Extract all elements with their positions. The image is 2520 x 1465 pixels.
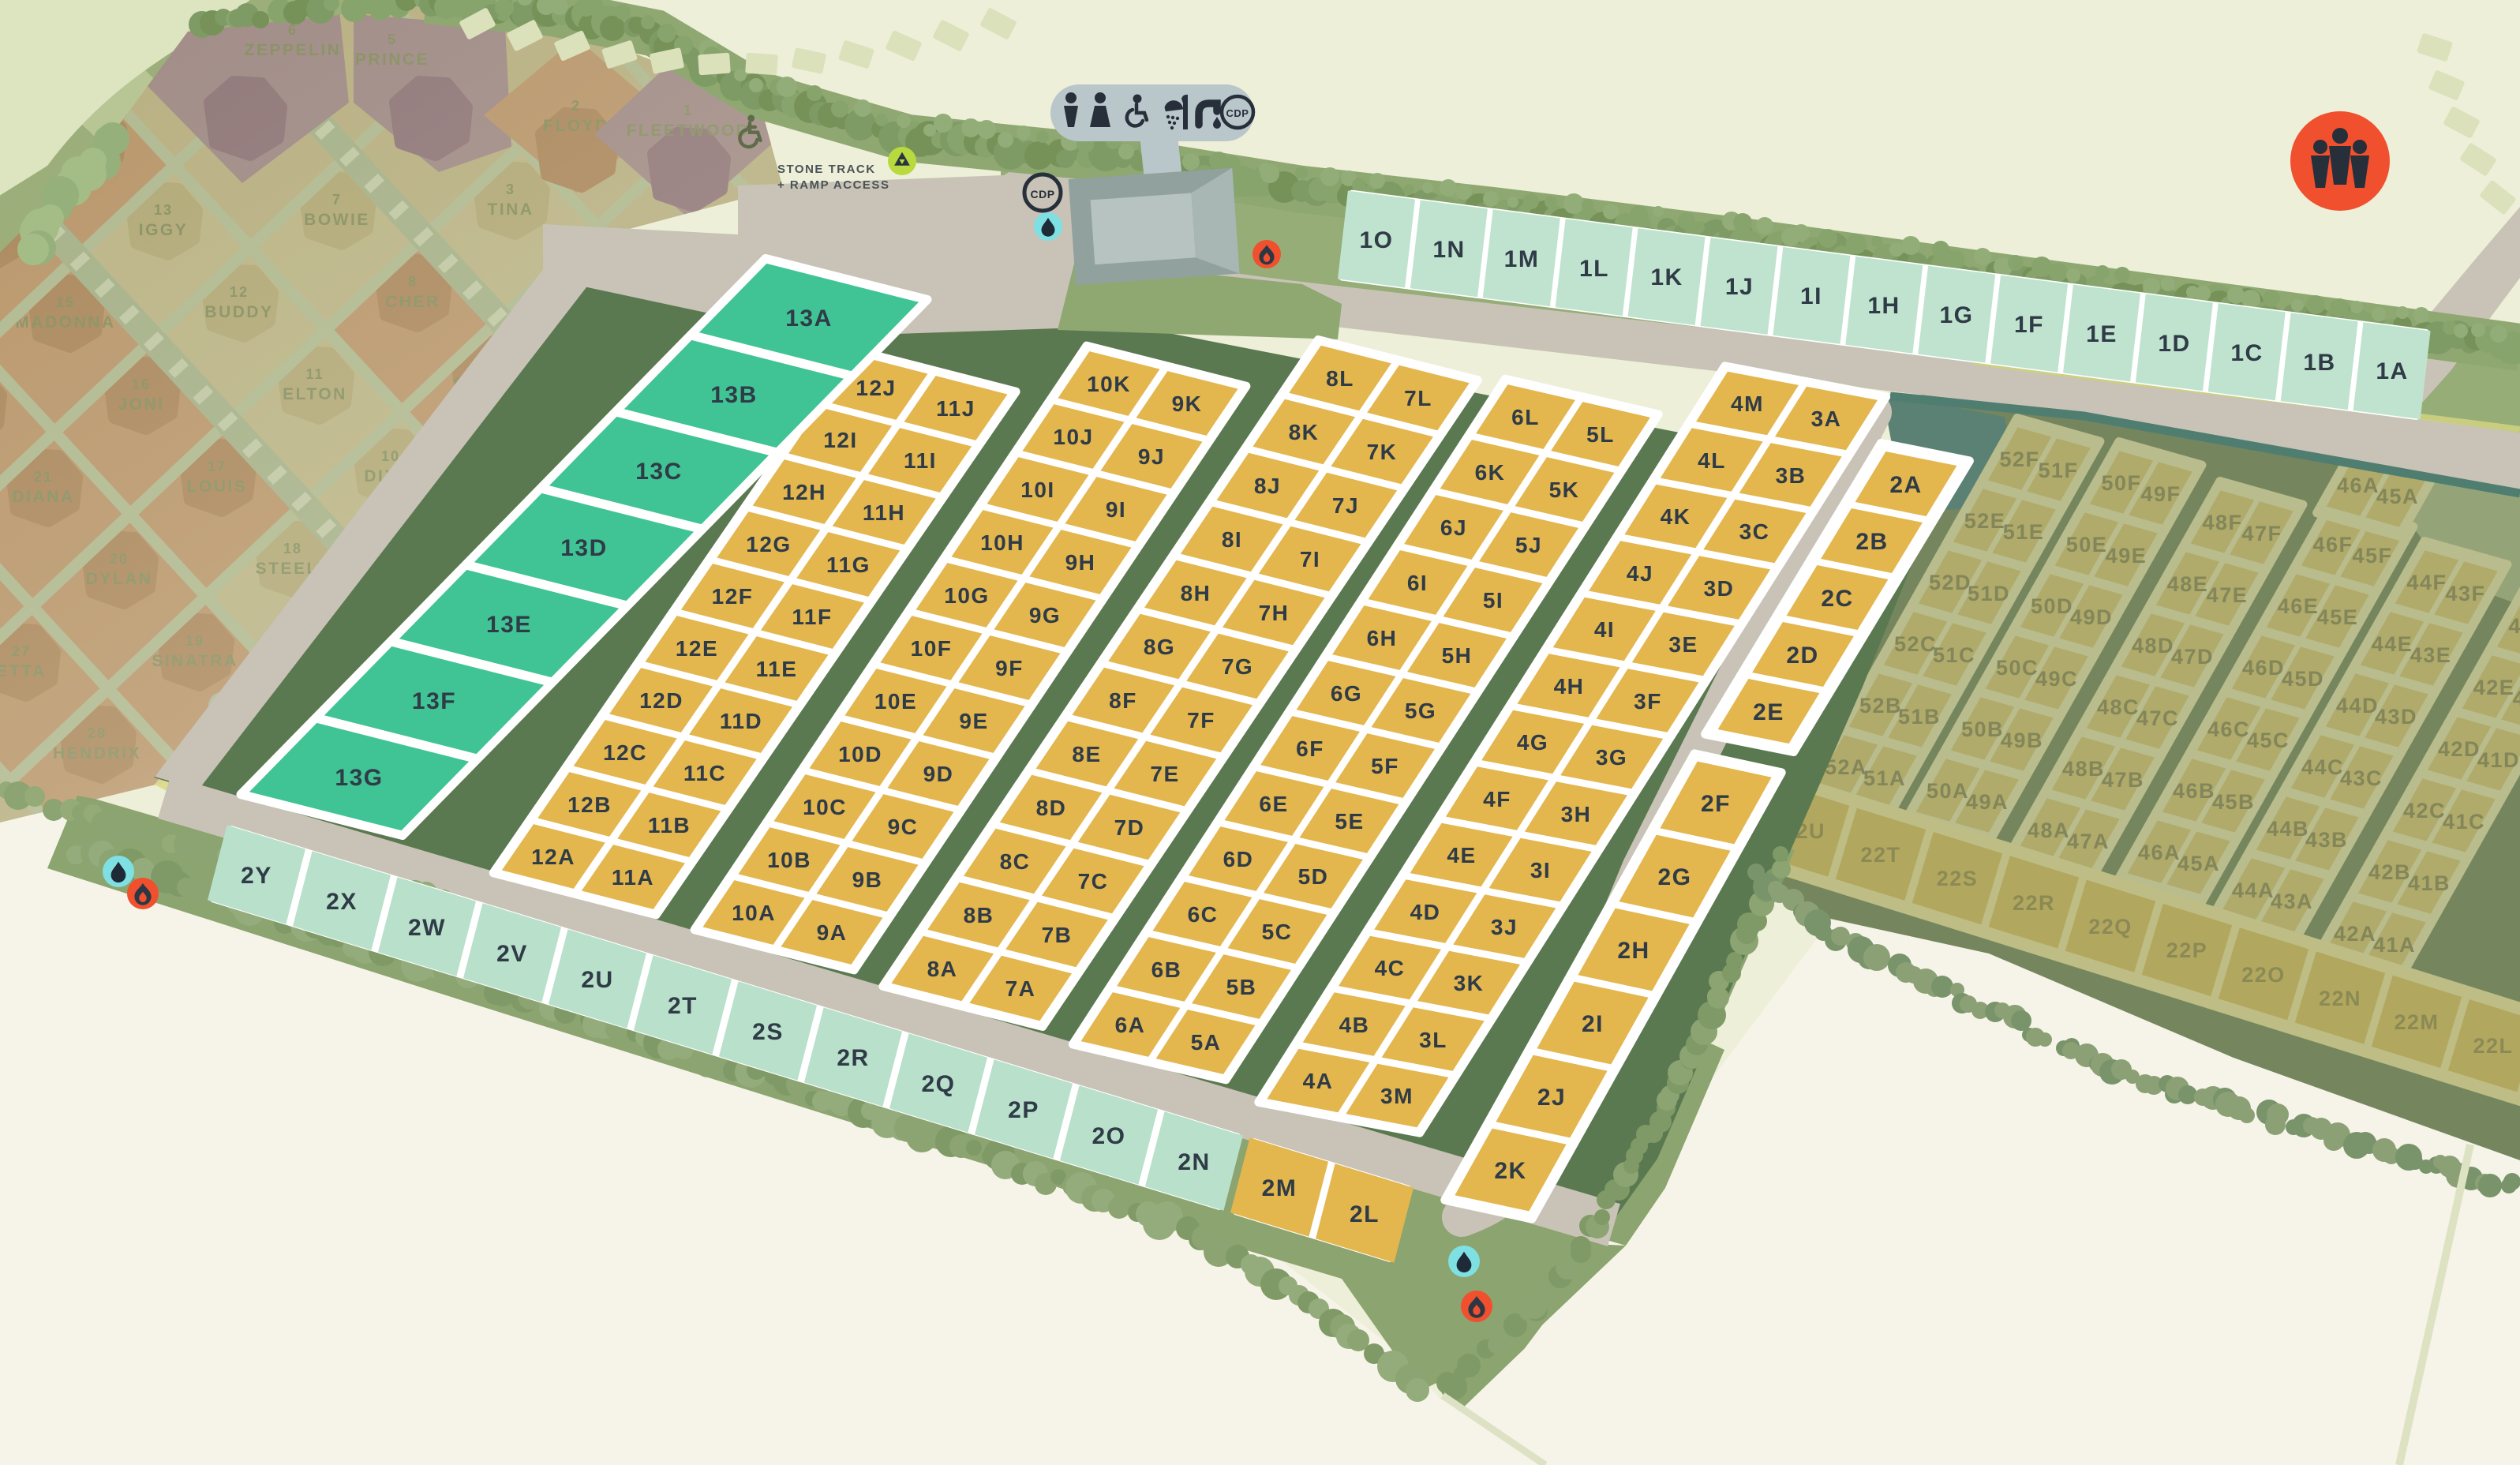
svg-text:1F: 1F [2014, 312, 2044, 338]
svg-text:51E: 51E [2003, 520, 2045, 544]
svg-text:47E: 47E [2207, 583, 2249, 607]
svg-text:46E: 46E [2278, 594, 2320, 618]
svg-text:50B: 50B [1961, 718, 2004, 741]
svg-text:3D: 3D [1704, 576, 1735, 601]
svg-text:10D: 10D [838, 742, 882, 766]
svg-text:9K: 9K [1172, 392, 1203, 416]
svg-text:1I: 1I [1800, 283, 1822, 309]
svg-text:46F: 46F [2312, 533, 2353, 556]
svg-text:5I: 5I [1483, 588, 1503, 613]
svg-text:22Q: 22Q [2088, 915, 2132, 939]
svg-text:6K: 6K [1475, 460, 1506, 485]
svg-text:4F: 4F [1483, 787, 1511, 811]
svg-text:5K: 5K [1549, 478, 1580, 502]
svg-text:1A: 1A [2376, 358, 2408, 384]
svg-text:1L: 1L [1579, 256, 1609, 282]
svg-text:11B: 11B [648, 813, 691, 837]
svg-text:48C: 48C [2097, 695, 2140, 719]
svg-text:8K: 8K [1289, 420, 1320, 444]
svg-text:9G: 9G [1029, 603, 1061, 628]
svg-text:2Q: 2Q [921, 1071, 955, 1097]
svg-text:13C: 13C [635, 459, 683, 485]
svg-text:12H: 12H [782, 480, 826, 504]
svg-text:5G: 5G [1405, 699, 1436, 723]
svg-text:3J: 3J [1491, 915, 1518, 939]
svg-text:3G: 3G [1596, 745, 1627, 770]
svg-text:1B: 1B [2303, 350, 2335, 376]
svg-text:3M: 3M [1380, 1084, 1414, 1108]
svg-text:7E: 7E [1150, 762, 1179, 786]
svg-text:7B: 7B [1042, 923, 1073, 947]
svg-text:4C: 4C [1375, 956, 1406, 980]
svg-text:43A: 43A [2271, 890, 2313, 913]
svg-text:6A: 6A [1115, 1013, 1146, 1037]
svg-text:11C: 11C [683, 761, 726, 785]
svg-text:50E: 50E [2066, 533, 2108, 556]
svg-text:8H: 8H [1181, 581, 1211, 605]
svg-text:9C: 9C [888, 815, 919, 839]
svg-text:41A: 41A [2373, 933, 2416, 957]
svg-text:11H: 11H [863, 500, 905, 525]
svg-text:43E: 43E [2410, 643, 2452, 667]
svg-text:11D: 11D [720, 709, 762, 733]
svg-text:3I: 3I [1530, 858, 1551, 882]
svg-text:8D: 8D [1036, 796, 1067, 820]
svg-text:6B: 6B [1151, 957, 1182, 982]
svg-text:6D: 6D [1223, 847, 1254, 871]
svg-text:46B: 46B [2173, 779, 2215, 803]
svg-text:10I: 10I [1020, 478, 1054, 502]
svg-text:5B: 5B [1226, 975, 1257, 999]
svg-text:47D: 47D [2171, 645, 2214, 669]
svg-text:22M: 22M [2394, 1010, 2439, 1034]
svg-text:52B: 52B [1859, 694, 1902, 718]
svg-text:CDP: CDP [1226, 107, 1249, 119]
svg-text:11G: 11G [826, 553, 871, 577]
svg-text:3A: 3A [1811, 407, 1842, 431]
svg-text:50F: 50F [2101, 471, 2141, 495]
svg-text:22T: 22T [1860, 843, 1900, 867]
svg-text:2M: 2M [1262, 1175, 1297, 1201]
svg-text:6J: 6J [1440, 515, 1467, 540]
svg-text:2N: 2N [1178, 1149, 1210, 1175]
svg-text:12F: 12F [712, 584, 754, 609]
svg-text:49E: 49E [2106, 544, 2147, 568]
svg-text:1D: 1D [2158, 331, 2190, 357]
svg-text:8L: 8L [1326, 366, 1354, 391]
svg-text:4K: 4K [1661, 504, 1691, 529]
svg-text:1N: 1N [1432, 237, 1465, 263]
svg-text:2G: 2G [1657, 864, 1691, 890]
svg-text:13D: 13D [560, 535, 608, 561]
svg-text:6L: 6L [1511, 405, 1540, 429]
svg-text:12D: 12D [639, 688, 683, 713]
svg-text:52A: 52A [1825, 755, 1867, 779]
svg-text:22S: 22S [1937, 867, 1979, 890]
svg-text:42F: 42F [2508, 614, 2520, 638]
svg-text:45E: 45E [2317, 605, 2359, 629]
svg-text:4E: 4E [1447, 843, 1476, 867]
svg-text:4G: 4G [1517, 730, 1548, 755]
svg-text:46C: 46C [2207, 718, 2250, 741]
svg-text:48B: 48B [2062, 757, 2105, 781]
svg-text:52D: 52D [1929, 571, 1971, 594]
svg-text:52E: 52E [1964, 509, 2006, 533]
svg-text:12B: 12B [567, 792, 612, 817]
svg-text:43D: 43D [2375, 705, 2417, 729]
svg-text:13A: 13A [785, 305, 833, 332]
svg-text:4H: 4H [1554, 674, 1585, 699]
svg-text:42A: 42A [2334, 922, 2376, 946]
svg-text:5E: 5E [1335, 809, 1364, 834]
svg-text:7F: 7F [1187, 708, 1215, 732]
svg-text:49A: 49A [1966, 790, 2009, 814]
svg-text:7D: 7D [1114, 815, 1145, 840]
svg-text:2Y: 2Y [241, 863, 272, 889]
svg-text:43C: 43C [2340, 766, 2383, 790]
svg-text:44C: 44C [2301, 755, 2344, 779]
svg-text:2E: 2E [1753, 699, 1784, 725]
svg-text:10G: 10G [944, 583, 989, 608]
svg-text:4J: 4J [1627, 561, 1653, 586]
svg-text:1J: 1J [1725, 274, 1754, 300]
svg-text:5H: 5H [1442, 643, 1473, 668]
svg-text:11I: 11I [904, 448, 937, 473]
svg-text:2F: 2F [1701, 791, 1731, 817]
svg-text:1G: 1G [1939, 302, 1973, 328]
svg-text:45B: 45B [2212, 790, 2255, 814]
svg-text:8G: 8G [1144, 635, 1175, 659]
svg-text:51B: 51B [1898, 705, 1941, 729]
svg-text:46D: 46D [2242, 656, 2285, 680]
svg-text:10K: 10K [1087, 372, 1131, 396]
svg-text:7L: 7L [1404, 386, 1432, 410]
svg-text:51C: 51C [1933, 643, 1975, 667]
svg-text:CDP: CDP [1030, 188, 1054, 200]
svg-text:50C: 50C [1996, 656, 2039, 680]
svg-text:10A: 10A [732, 901, 776, 925]
svg-text:13F: 13F [412, 688, 456, 714]
svg-text:4I: 4I [1594, 617, 1615, 642]
svg-text:2D: 2D [1786, 643, 1818, 669]
svg-text:12G: 12G [746, 532, 791, 556]
svg-text:6H: 6H [1367, 626, 1398, 650]
svg-text:46A: 46A [2337, 474, 2380, 497]
svg-text:+ RAMP ACCESS: + RAMP ACCESS [777, 178, 889, 192]
svg-text:13G: 13G [335, 765, 383, 791]
svg-text:9I: 9I [1106, 497, 1126, 522]
svg-text:3B: 3B [1776, 463, 1807, 488]
svg-text:4B: 4B [1339, 1013, 1370, 1037]
svg-text:2A: 2A [1889, 472, 1922, 498]
svg-text:2P: 2P [1008, 1097, 1039, 1123]
svg-text:10F: 10F [911, 636, 953, 661]
svg-text:1E: 1E [2086, 321, 2117, 347]
svg-text:47B: 47B [2102, 768, 2144, 792]
svg-text:7J: 7J [1332, 493, 1359, 518]
svg-text:9A: 9A [817, 920, 848, 945]
svg-text:42B: 42B [2368, 860, 2411, 884]
svg-text:52F: 52F [1999, 448, 2039, 471]
svg-text:44B: 44B [2267, 817, 2309, 841]
svg-text:41C: 41C [2443, 810, 2485, 834]
svg-text:2O: 2O [1092, 1123, 1125, 1149]
svg-text:STONE TRACK: STONE TRACK [777, 163, 876, 176]
svg-text:42D: 42D [2438, 737, 2481, 761]
svg-text:4A: 4A [1303, 1069, 1334, 1093]
svg-text:44F: 44F [2406, 571, 2447, 594]
svg-text:22N: 22N [2319, 987, 2361, 1010]
svg-text:22P: 22P [2166, 939, 2208, 962]
svg-text:45C: 45C [2247, 729, 2290, 752]
svg-text:8B: 8B [964, 903, 994, 927]
svg-text:1K: 1K [1650, 264, 1683, 290]
svg-text:10J: 10J [1053, 425, 1093, 449]
svg-text:2U: 2U [581, 967, 613, 993]
svg-text:3H: 3H [1561, 802, 1592, 826]
svg-text:43F: 43F [2445, 582, 2485, 605]
svg-text:48E: 48E [2167, 572, 2209, 596]
svg-text:2X: 2X [326, 889, 358, 915]
svg-text:48D: 48D [2132, 634, 2174, 658]
svg-text:2W: 2W [408, 915, 446, 941]
svg-text:2B: 2B [1855, 529, 1888, 555]
svg-text:22O: 22O [2241, 963, 2286, 987]
svg-text:2J: 2J [1537, 1085, 1566, 1111]
svg-text:7G: 7G [1222, 654, 1253, 679]
svg-text:8J: 8J [1254, 474, 1281, 498]
svg-text:41B: 41B [2408, 871, 2451, 895]
svg-text:9F: 9F [995, 656, 1024, 680]
svg-text:50A: 50A [1927, 779, 1969, 803]
svg-text:51D: 51D [1968, 582, 2010, 605]
svg-text:3C: 3C [1739, 519, 1770, 544]
svg-text:10H: 10H [980, 530, 1024, 555]
svg-text:12A: 12A [531, 845, 575, 869]
svg-text:6G: 6G [1331, 681, 1362, 706]
svg-text:2T: 2T [668, 993, 698, 1019]
svg-text:2S: 2S [752, 1019, 784, 1045]
svg-text:1C: 1C [2230, 340, 2263, 366]
svg-text:8E: 8E [1072, 742, 1101, 766]
svg-text:11F: 11F [792, 605, 832, 629]
svg-text:49D: 49D [2070, 605, 2113, 629]
svg-text:7I: 7I [1300, 547, 1320, 571]
svg-text:5L: 5L [1586, 422, 1615, 447]
svg-text:44D: 44D [2336, 694, 2379, 718]
svg-text:47A: 47A [2067, 830, 2110, 853]
svg-text:13E: 13E [486, 612, 532, 638]
svg-text:12E: 12E [676, 636, 718, 661]
svg-text:12I: 12I [823, 428, 857, 452]
svg-text:2C: 2C [1821, 586, 1853, 612]
svg-text:1O: 1O [1359, 227, 1393, 253]
svg-text:5D: 5D [1298, 864, 1329, 889]
svg-text:44A: 44A [2232, 879, 2275, 902]
svg-text:2R: 2R [837, 1045, 869, 1071]
svg-text:47C: 47C [2136, 706, 2179, 730]
svg-text:43B: 43B [2305, 828, 2348, 852]
svg-text:44E: 44E [2372, 632, 2413, 656]
svg-text:7A: 7A [1005, 976, 1036, 1001]
svg-text:45A: 45A [2177, 852, 2220, 875]
svg-text:49C: 49C [2035, 667, 2078, 691]
svg-text:42C: 42C [2403, 799, 2446, 822]
svg-text:42E: 42E [2473, 676, 2515, 699]
svg-text:5F: 5F [1371, 754, 1399, 778]
svg-text:45D: 45D [2282, 667, 2324, 691]
svg-text:12J: 12J [856, 376, 896, 400]
svg-text:47F: 47F [2241, 522, 2282, 545]
svg-text:4M: 4M [1731, 392, 1764, 416]
svg-text:2K: 2K [1494, 1158, 1526, 1184]
svg-text:10C: 10C [803, 795, 847, 819]
svg-text:4D: 4D [1410, 900, 1441, 924]
svg-text:11E: 11E [756, 657, 798, 681]
svg-text:51F: 51F [2038, 459, 2078, 482]
svg-text:45F: 45F [2352, 544, 2392, 568]
svg-text:8I: 8I [1222, 527, 1242, 552]
svg-text:4L: 4L [1698, 448, 1726, 473]
svg-text:8A: 8A [927, 957, 958, 981]
svg-text:6I: 6I [1407, 571, 1428, 595]
svg-text:9H: 9H [1065, 550, 1096, 575]
svg-text:7C: 7C [1078, 869, 1109, 894]
svg-text:6C: 6C [1188, 902, 1219, 927]
svg-text:5A: 5A [1191, 1030, 1222, 1055]
svg-text:9B: 9B [852, 867, 883, 892]
svg-text:9D: 9D [923, 762, 954, 786]
svg-text:48A: 48A [2028, 819, 2070, 842]
svg-text:10B: 10B [767, 848, 811, 872]
svg-text:11A: 11A [612, 865, 654, 890]
svg-text:13B: 13B [710, 382, 758, 408]
svg-text:1M: 1M [1504, 246, 1540, 272]
svg-text:2L: 2L [1350, 1201, 1380, 1227]
svg-text:22L: 22L [2473, 1034, 2513, 1058]
svg-text:7K: 7K [1367, 440, 1398, 464]
svg-text:3K: 3K [1454, 971, 1485, 995]
svg-text:45A: 45A [2376, 485, 2419, 508]
svg-text:3L: 3L [1419, 1028, 1447, 1052]
svg-text:49F: 49F [2140, 482, 2181, 506]
svg-text:3E: 3E [1668, 632, 1698, 657]
svg-text:52C: 52C [1894, 632, 1937, 656]
svg-text:51A: 51A [1863, 766, 1906, 790]
svg-text:50D: 50D [2031, 594, 2073, 618]
svg-text:3F: 3F [1634, 689, 1662, 714]
svg-text:8F: 8F [1109, 688, 1137, 713]
svg-text:48F: 48F [2202, 511, 2242, 534]
svg-text:22R: 22R [2013, 891, 2055, 915]
svg-text:6F: 6F [1296, 736, 1324, 761]
svg-text:2V: 2V [496, 941, 528, 967]
svg-text:49B: 49B [2001, 729, 2043, 752]
svg-text:12C: 12C [603, 740, 647, 765]
svg-text:9J: 9J [1138, 444, 1165, 469]
svg-text:5J: 5J [1515, 533, 1542, 557]
svg-text:5C: 5C [1262, 920, 1293, 944]
svg-text:46A: 46A [2138, 841, 2181, 864]
svg-text:11J: 11J [936, 396, 975, 421]
svg-text:9E: 9E [959, 709, 988, 733]
svg-text:8C: 8C [1000, 849, 1031, 874]
svg-text:6E: 6E [1259, 792, 1288, 816]
svg-text:2I: 2I [1582, 1011, 1604, 1037]
svg-text:10E: 10E [874, 689, 917, 714]
svg-text:41E: 41E [2513, 687, 2520, 710]
svg-text:41D: 41D [2477, 748, 2520, 772]
svg-text:2H: 2H [1617, 938, 1649, 964]
svg-text:1H: 1H [1867, 293, 1900, 319]
svg-text:7H: 7H [1259, 601, 1290, 625]
